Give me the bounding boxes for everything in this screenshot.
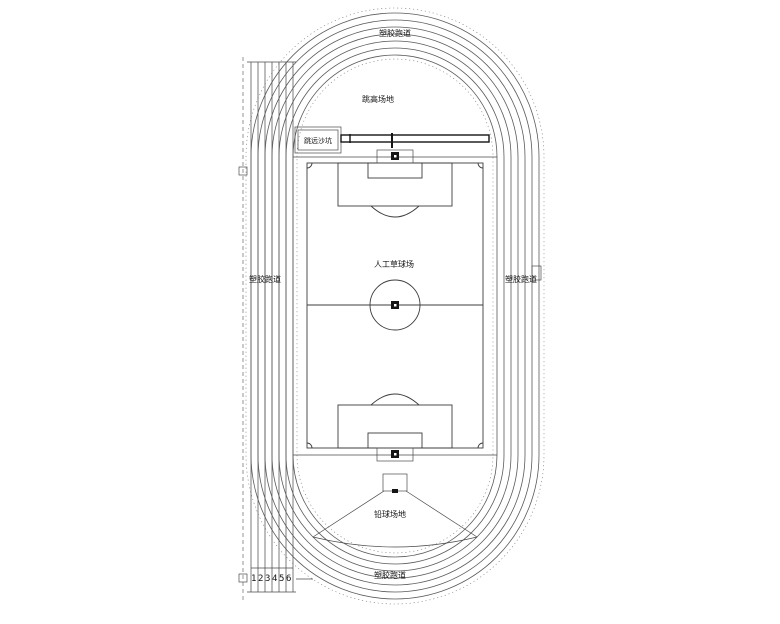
sector-arc: [313, 537, 477, 547]
label-long-jump-pit: 跳远沙坑: [304, 136, 332, 145]
lane-number: 1: [251, 574, 256, 584]
label-track-bottom: 塑胶跑道: [374, 570, 406, 580]
label-track-right: 塑胶跑道: [505, 274, 537, 284]
penalty-arc-top: [371, 206, 419, 217]
lane-number: 2: [258, 574, 263, 584]
track-plan-drawing: 1 2 3 4 5 6: [0, 0, 780, 624]
goal-area-top: [368, 163, 422, 178]
label-track-left: 塑胶跑道: [249, 274, 281, 284]
runway-bar: [341, 135, 489, 142]
label-field: 人工草球场: [374, 259, 414, 269]
corner-arc: [478, 443, 483, 448]
penalty-area-bottom: [338, 405, 452, 448]
corner-arc: [307, 443, 312, 448]
sector-line-right: [406, 491, 477, 537]
corner-arc: [307, 163, 312, 168]
lane-number: 6: [286, 574, 291, 584]
lane-number: 3: [265, 574, 270, 584]
lane-number: 4: [272, 574, 277, 584]
throwing-circle-box: [383, 474, 407, 491]
stop-board: [392, 489, 398, 493]
soccer-field: [307, 150, 483, 461]
survey-mark-top: [391, 152, 399, 160]
survey-mark-center: [391, 301, 399, 309]
goal-area-bottom: [368, 433, 422, 448]
lane-number: 5: [279, 574, 284, 584]
label-shot-put: 铅球场地: [374, 509, 406, 519]
lane-numbers: 1 2 3 4 5 6: [251, 574, 291, 584]
corner-arc: [478, 163, 483, 168]
label-track-top: 塑胶跑道: [379, 28, 411, 38]
penalty-arc-bottom: [371, 394, 419, 405]
survey-mark-bottom: [391, 450, 399, 458]
label-high-jump: 跳高场地: [362, 94, 394, 104]
penalty-area-top: [338, 163, 452, 206]
